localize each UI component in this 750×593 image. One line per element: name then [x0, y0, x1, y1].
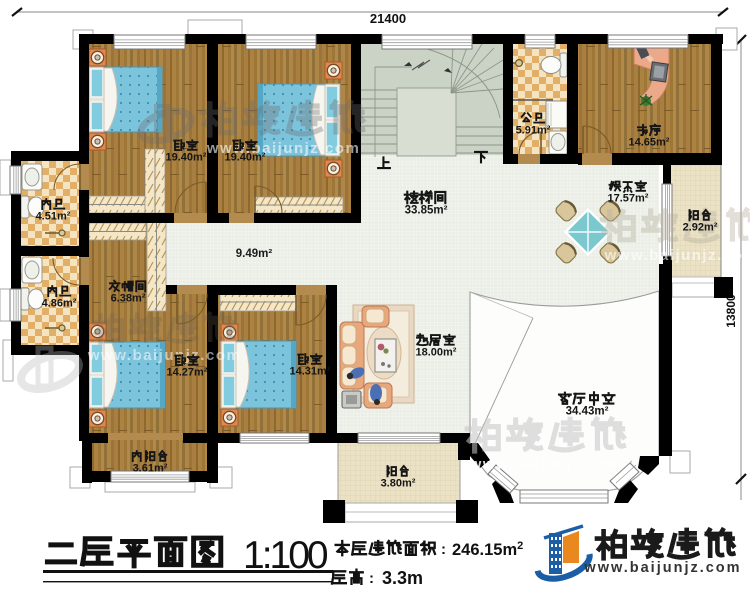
- svg-text:www.baijunjz.com: www.baijunjz.com: [583, 560, 741, 576]
- svg-text:4.86m²: 4.86m²: [42, 298, 77, 310]
- svg-text:www.baijunjz.com: www.baijunjz.com: [604, 247, 750, 264]
- svg-text:18.00m²: 18.00m²: [416, 347, 457, 359]
- svg-text:www.baijunjz.com: www.baijunjz.com: [87, 347, 241, 364]
- svg-text:3.3m: 3.3m: [382, 568, 423, 588]
- svg-text:5.91m²: 5.91m²: [516, 125, 551, 137]
- svg-text::: :: [441, 541, 446, 558]
- svg-text:3.80m²: 3.80m²: [381, 478, 416, 490]
- svg-text:www.baijunjz.com: www.baijunjz.com: [469, 456, 623, 473]
- svg-text:246.15m2: 246.15m2: [452, 540, 523, 559]
- svg-text:13800: 13800: [724, 294, 738, 328]
- svg-text:14.27m²: 14.27m²: [167, 367, 208, 379]
- svg-text:9.49m²: 9.49m²: [236, 248, 273, 260]
- svg-text:33.85m²: 33.85m²: [405, 205, 448, 217]
- svg-text:14.31m²: 14.31m²: [290, 366, 331, 378]
- svg-text::: :: [369, 570, 374, 587]
- svg-text:3.61m²: 3.61m²: [133, 463, 168, 475]
- svg-text:4.51m²: 4.51m²: [36, 211, 71, 223]
- svg-text:19.40m²: 19.40m²: [166, 152, 207, 164]
- svg-text:6.38m²: 6.38m²: [111, 293, 146, 305]
- svg-text:19.40m²: 19.40m²: [225, 152, 266, 164]
- svg-text:2.92m²: 2.92m²: [683, 222, 718, 234]
- svg-text:21400: 21400: [370, 11, 406, 26]
- svg-text:1:100: 1:100: [243, 534, 328, 577]
- svg-text:34.43m²: 34.43m²: [566, 406, 609, 418]
- svg-text:14.65m²: 14.65m²: [629, 137, 670, 149]
- svg-text:17.57m²: 17.57m²: [608, 193, 649, 205]
